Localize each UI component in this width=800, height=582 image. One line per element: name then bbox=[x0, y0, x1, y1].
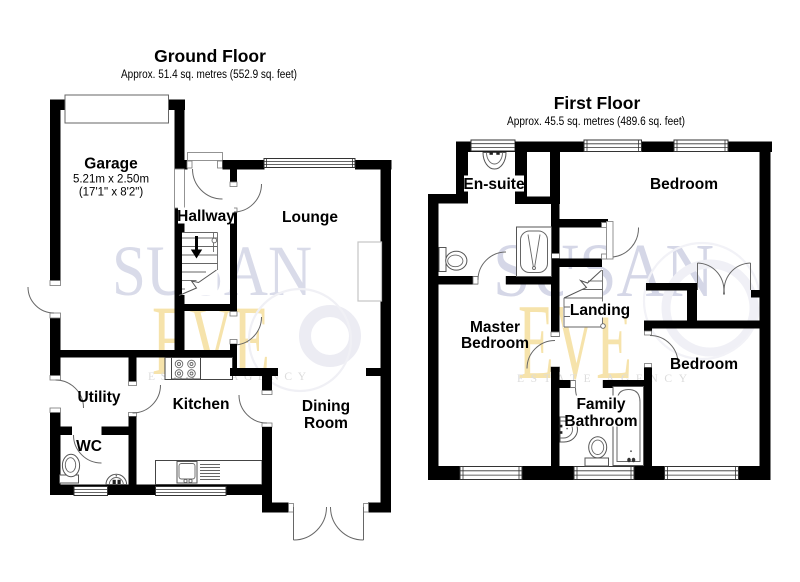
svg-text:En-suite: En-suite bbox=[463, 176, 525, 193]
svg-text:Ground Floor: Ground Floor bbox=[154, 46, 266, 66]
svg-text:WC: WC bbox=[76, 438, 102, 455]
svg-text:Garage: Garage bbox=[84, 156, 138, 173]
svg-text:Utility: Utility bbox=[77, 389, 120, 406]
svg-text:Landing: Landing bbox=[570, 302, 630, 319]
svg-text:Bathroom: Bathroom bbox=[564, 413, 637, 430]
svg-text:Bedroom: Bedroom bbox=[461, 335, 529, 352]
svg-text:Family: Family bbox=[576, 396, 625, 413]
svg-text:Bedroom: Bedroom bbox=[670, 356, 738, 373]
svg-text:Hallway: Hallway bbox=[177, 208, 235, 225]
svg-text:Approx. 51.4 sq. metres (552.9: Approx. 51.4 sq. metres (552.9 sq. feet) bbox=[121, 69, 297, 81]
svg-text:Room: Room bbox=[304, 415, 348, 432]
svg-text:Bedroom: Bedroom bbox=[650, 176, 718, 193]
svg-text:Approx. 45.5 sq. metres (489.6: Approx. 45.5 sq. metres (489.6 sq. feet) bbox=[507, 116, 685, 128]
svg-text:Dining: Dining bbox=[302, 398, 350, 415]
svg-text:5.21m x 2.50m: 5.21m x 2.50m bbox=[73, 174, 149, 186]
svg-text:(17'1" x 8'2"): (17'1" x 8'2") bbox=[79, 187, 144, 199]
svg-text:Kitchen: Kitchen bbox=[173, 396, 230, 413]
svg-text:Lounge: Lounge bbox=[282, 209, 338, 226]
svg-text:First Floor: First Floor bbox=[554, 93, 641, 113]
svg-text:Master: Master bbox=[470, 319, 520, 336]
